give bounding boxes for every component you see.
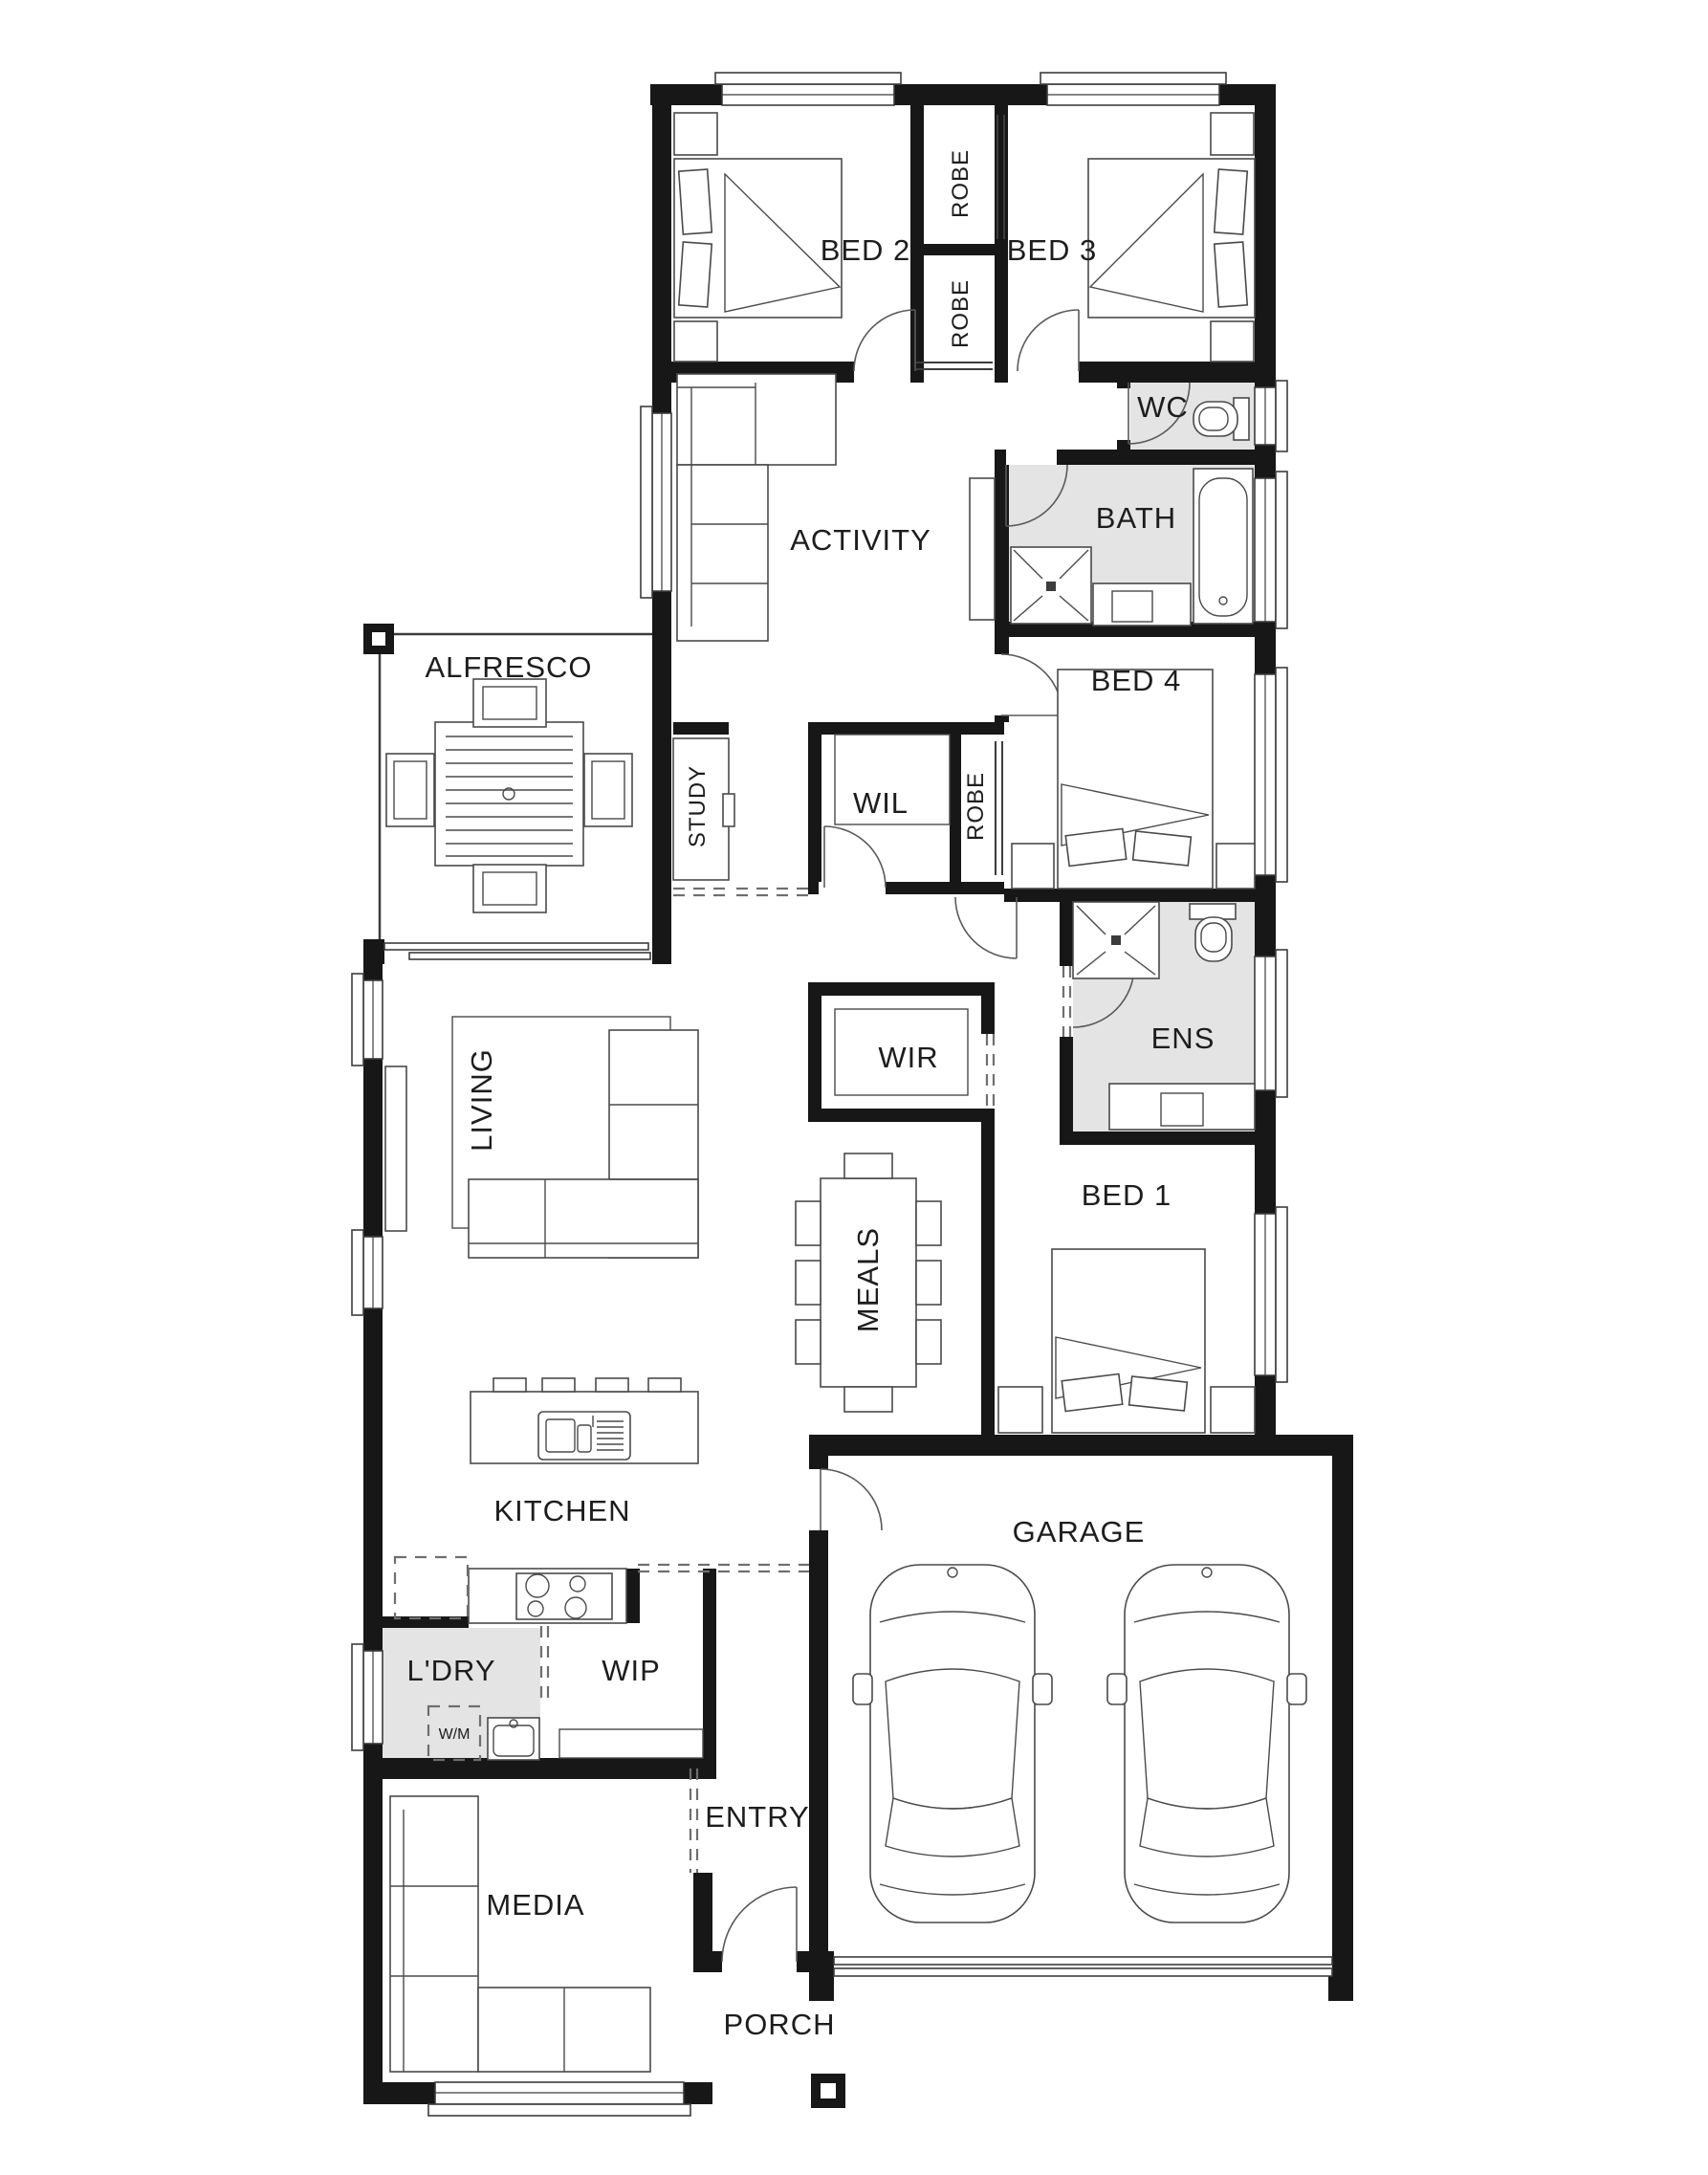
fridge-space bbox=[395, 1557, 468, 1618]
stool bbox=[493, 1378, 526, 1392]
outdoor-table bbox=[386, 679, 632, 912]
room-label-porch: PORCH bbox=[724, 2008, 836, 2041]
room-label-ldry: L'DRY bbox=[406, 1654, 495, 1687]
stacker-door bbox=[384, 943, 650, 959]
ens-shower bbox=[1073, 902, 1159, 978]
media-window bbox=[428, 2082, 690, 2116]
laundry-window bbox=[352, 1644, 383, 1750]
bedside-table bbox=[1012, 844, 1054, 889]
room-label-wil: WIL bbox=[853, 786, 909, 820]
bed2-furniture bbox=[674, 113, 842, 362]
stool bbox=[596, 1378, 628, 1392]
bed3-furniture bbox=[1088, 113, 1255, 362]
living-window-1 bbox=[352, 974, 383, 1066]
bath-window bbox=[1255, 472, 1287, 628]
room-label-wip: WIP bbox=[602, 1654, 661, 1687]
activity-window bbox=[641, 406, 671, 598]
living-window-2 bbox=[352, 1230, 383, 1315]
bedside-table bbox=[1211, 321, 1254, 362]
wc-toilet bbox=[1193, 398, 1249, 440]
kitchen-bench bbox=[469, 1569, 626, 1623]
media-sofa bbox=[390, 1796, 650, 2072]
car bbox=[1107, 1565, 1306, 1922]
room-label-bed2: BED 2 bbox=[821, 233, 911, 267]
hall-door bbox=[955, 897, 1017, 958]
dining-chair bbox=[916, 1261, 941, 1305]
room-label-activity: ACTIVITY bbox=[790, 523, 931, 557]
label-washing-machine: W/M bbox=[439, 1726, 471, 1743]
porch-column bbox=[811, 2074, 845, 2108]
activity-sofa bbox=[677, 374, 836, 641]
room-label-bed1: BED 1 bbox=[1082, 1178, 1172, 1212]
bath-vanity bbox=[1093, 583, 1191, 626]
floor-plan-page: BED 2 BED 3 ROBE ROBE WC BATH ACTIVITY A… bbox=[0, 0, 1708, 2175]
kitchen-sink bbox=[538, 1412, 630, 1460]
bedside-table bbox=[674, 113, 717, 155]
bed2-door bbox=[854, 310, 915, 371]
garage-door bbox=[834, 1957, 1332, 1976]
dining-chair bbox=[796, 1201, 821, 1245]
kitchen-island bbox=[471, 1378, 698, 1463]
room-label-kitchen: KITCHEN bbox=[493, 1494, 630, 1527]
bed3-door bbox=[1018, 310, 1079, 371]
room-label-living: LIVING bbox=[465, 1048, 498, 1152]
dining-chair bbox=[916, 1201, 941, 1245]
garage-entry-door bbox=[821, 1469, 882, 1530]
room-label-entry: ENTRY bbox=[705, 1800, 810, 1834]
room-label-robe-mid: ROBE bbox=[948, 279, 974, 348]
car-mirror bbox=[1287, 1674, 1306, 1704]
pantry-bench bbox=[559, 1729, 703, 1758]
dining-chair bbox=[796, 1261, 821, 1305]
room-label-bed3: BED 3 bbox=[1007, 233, 1098, 267]
car-mirror bbox=[853, 1674, 872, 1704]
stool bbox=[542, 1378, 575, 1392]
room-label-bed4: BED 4 bbox=[1091, 664, 1182, 697]
living-furniture bbox=[385, 1017, 698, 1258]
living-sofa bbox=[469, 1030, 698, 1258]
bed4-window bbox=[1255, 668, 1287, 882]
floor-plan: BED 2 BED 3 ROBE ROBE WC BATH ACTIVITY A… bbox=[0, 0, 1708, 2175]
bedside-table bbox=[1211, 113, 1254, 155]
bathtub bbox=[1193, 469, 1253, 624]
dining-chair bbox=[844, 1153, 892, 1178]
bed4-furniture bbox=[1012, 670, 1255, 889]
stool bbox=[648, 1378, 681, 1392]
room-label-bath: BATH bbox=[1096, 501, 1176, 535]
room-label-robe-top: ROBE bbox=[948, 149, 974, 218]
bed2-window bbox=[715, 73, 901, 105]
room-label-study: STUDY bbox=[685, 765, 711, 847]
dining-chair bbox=[916, 1320, 941, 1364]
bedside-table bbox=[1211, 1387, 1255, 1433]
room-label-media: MEDIA bbox=[486, 1888, 584, 1922]
dining-chair bbox=[796, 1320, 821, 1364]
car bbox=[853, 1565, 1052, 1922]
bedside-table bbox=[1216, 844, 1255, 889]
linen-cupboard bbox=[970, 478, 995, 620]
ens-window bbox=[1255, 950, 1287, 1097]
cooktop bbox=[516, 1573, 612, 1619]
tv-unit bbox=[385, 1066, 406, 1231]
room-label-alfresco: ALFRESCO bbox=[425, 650, 592, 684]
car-mirror bbox=[1033, 1674, 1052, 1704]
room-label-wc: WC bbox=[1137, 390, 1189, 424]
ens-vanity bbox=[1109, 1084, 1255, 1130]
bedside-table bbox=[998, 1387, 1042, 1433]
dining-chair bbox=[844, 1387, 892, 1412]
room-label-garage: GARAGE bbox=[1013, 1515, 1146, 1549]
ens-toilet bbox=[1190, 904, 1236, 961]
bed1-window bbox=[1255, 1207, 1287, 1382]
bed1-furniture bbox=[998, 1249, 1255, 1433]
car-mirror bbox=[1107, 1674, 1127, 1704]
bed4-door bbox=[1001, 654, 1062, 715]
laundry-trough bbox=[488, 1718, 539, 1760]
room-label-meals: MEALS bbox=[851, 1227, 885, 1332]
bedside-table bbox=[674, 321, 717, 362]
wc-window bbox=[1255, 381, 1287, 451]
bed3-window bbox=[1040, 73, 1226, 105]
front-door bbox=[722, 1887, 797, 1962]
robe-bed4-slider bbox=[996, 741, 1002, 875]
robe-slider-bottom bbox=[916, 362, 993, 369]
room-label-robe-bed4: ROBE bbox=[963, 772, 989, 841]
wil-door bbox=[824, 826, 886, 888]
room-label-ens: ENS bbox=[1151, 1022, 1215, 1055]
room-label-wir: WIR bbox=[878, 1041, 938, 1074]
bath-shower bbox=[1011, 547, 1091, 624]
